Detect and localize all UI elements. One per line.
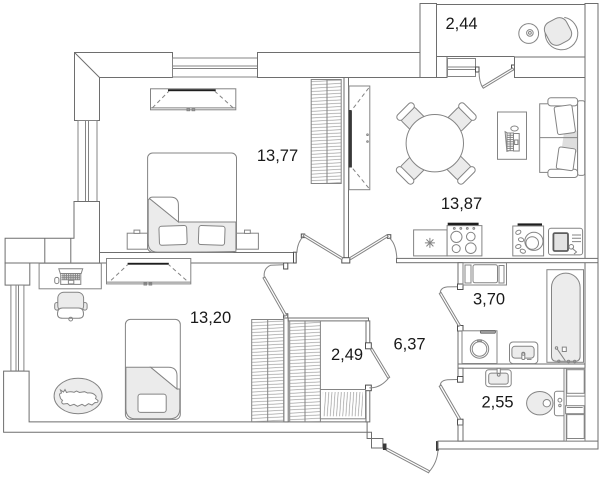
svg-text:13,87: 13,87 [441,195,482,213]
svg-text:13,20: 13,20 [190,309,231,327]
svg-text:6,37: 6,37 [393,336,425,354]
svg-text:13,77: 13,77 [257,147,298,165]
svg-text:2,55: 2,55 [481,394,513,412]
svg-text:2,44: 2,44 [445,15,477,33]
svg-text:2,49: 2,49 [331,346,363,364]
svg-text:3,70: 3,70 [473,291,505,309]
